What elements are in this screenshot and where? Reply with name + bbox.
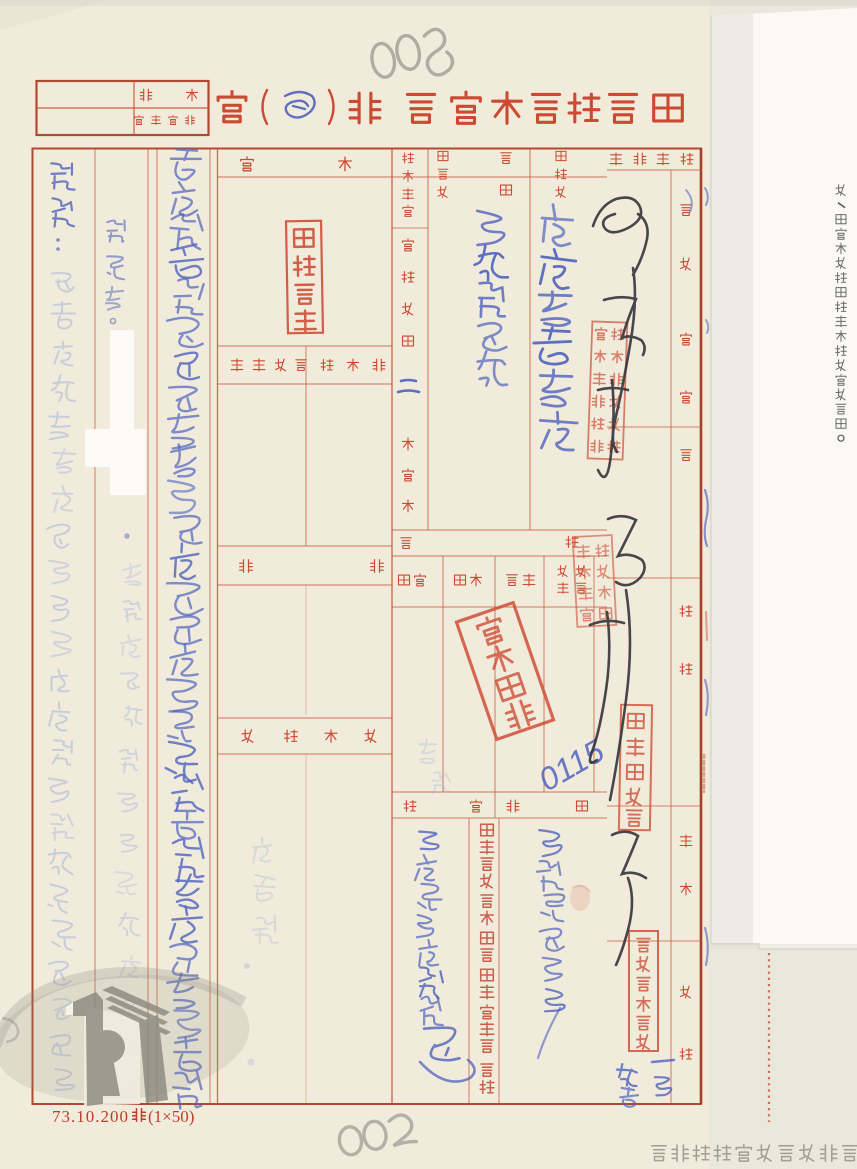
svg-text:(1×50): (1×50) [148, 1107, 194, 1126]
svg-text:73.10.200: 73.10.200 [52, 1107, 129, 1126]
